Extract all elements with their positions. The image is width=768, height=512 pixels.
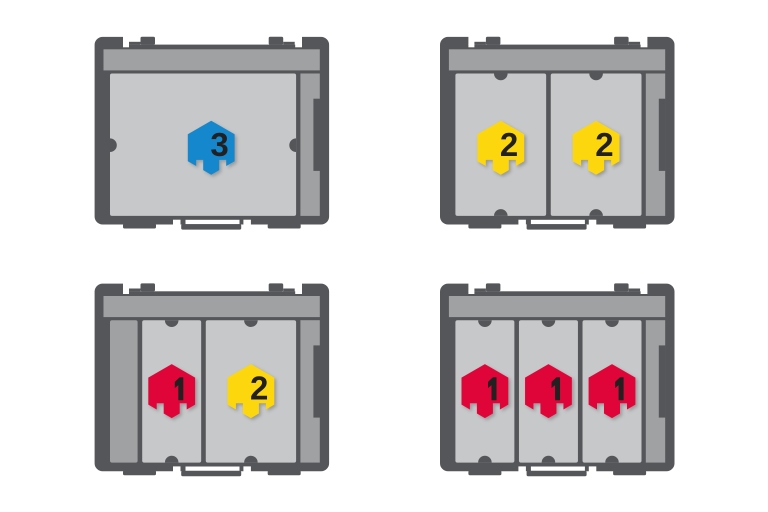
svg-text:2: 2	[500, 126, 518, 163]
svg-text:2: 2	[595, 126, 613, 163]
svg-text:3: 3	[210, 126, 228, 163]
svg-text:2: 2	[250, 369, 268, 406]
